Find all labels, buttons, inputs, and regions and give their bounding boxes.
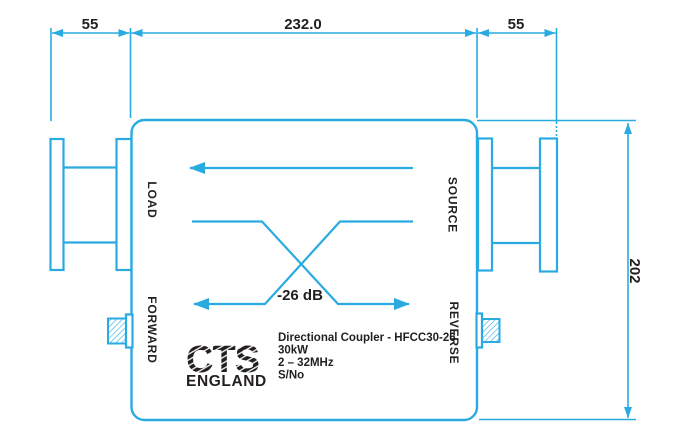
spec-power-line: 30kW: [278, 345, 308, 357]
dim-label-body-width: 232.0: [284, 16, 322, 33]
forward-connector: [108, 315, 133, 348]
reverse-connector-thread: [482, 319, 500, 342]
dim-label-right-flange-width: 55: [508, 16, 525, 33]
port-label-forward: FORWARD: [145, 296, 159, 363]
reverse-connector: [477, 314, 500, 348]
reverse-connector-flange: [477, 314, 483, 348]
left-flange-inner-plate: [117, 139, 132, 270]
spec-serial-line: S/No: [278, 370, 304, 382]
dim-label-left-flange-width: 55: [82, 16, 99, 33]
coupling-value-label: -26 dB: [277, 287, 323, 304]
left-flange-outer-plate: [51, 139, 64, 270]
coupler-body: [132, 120, 478, 420]
cts-logo-england: ENGLAND: [186, 373, 267, 390]
dim-label-body-height: 202: [626, 258, 643, 283]
spec-frequency-line: 2 – 32MHz: [278, 357, 334, 369]
port-label-load: LOAD: [145, 181, 159, 218]
right-flange: [478, 139, 557, 272]
left-flange: [51, 139, 132, 270]
directional-coupler-drawing: 55 232.0 55 202 -26 dB LOAD SOURCE FOR: [0, 0, 686, 444]
forward-connector-flange: [126, 315, 133, 348]
forward-connector-thread: [108, 319, 127, 344]
right-flange-outer-plate: [540, 139, 557, 272]
spec-model-line: Directional Coupler - HFCC30-26: [278, 332, 456, 344]
port-label-source: SOURCE: [446, 177, 460, 233]
right-flange-inner-plate: [478, 139, 492, 271]
drawing-svg: 55 232.0 55 202 -26 dB LOAD SOURCE FOR: [0, 0, 686, 444]
